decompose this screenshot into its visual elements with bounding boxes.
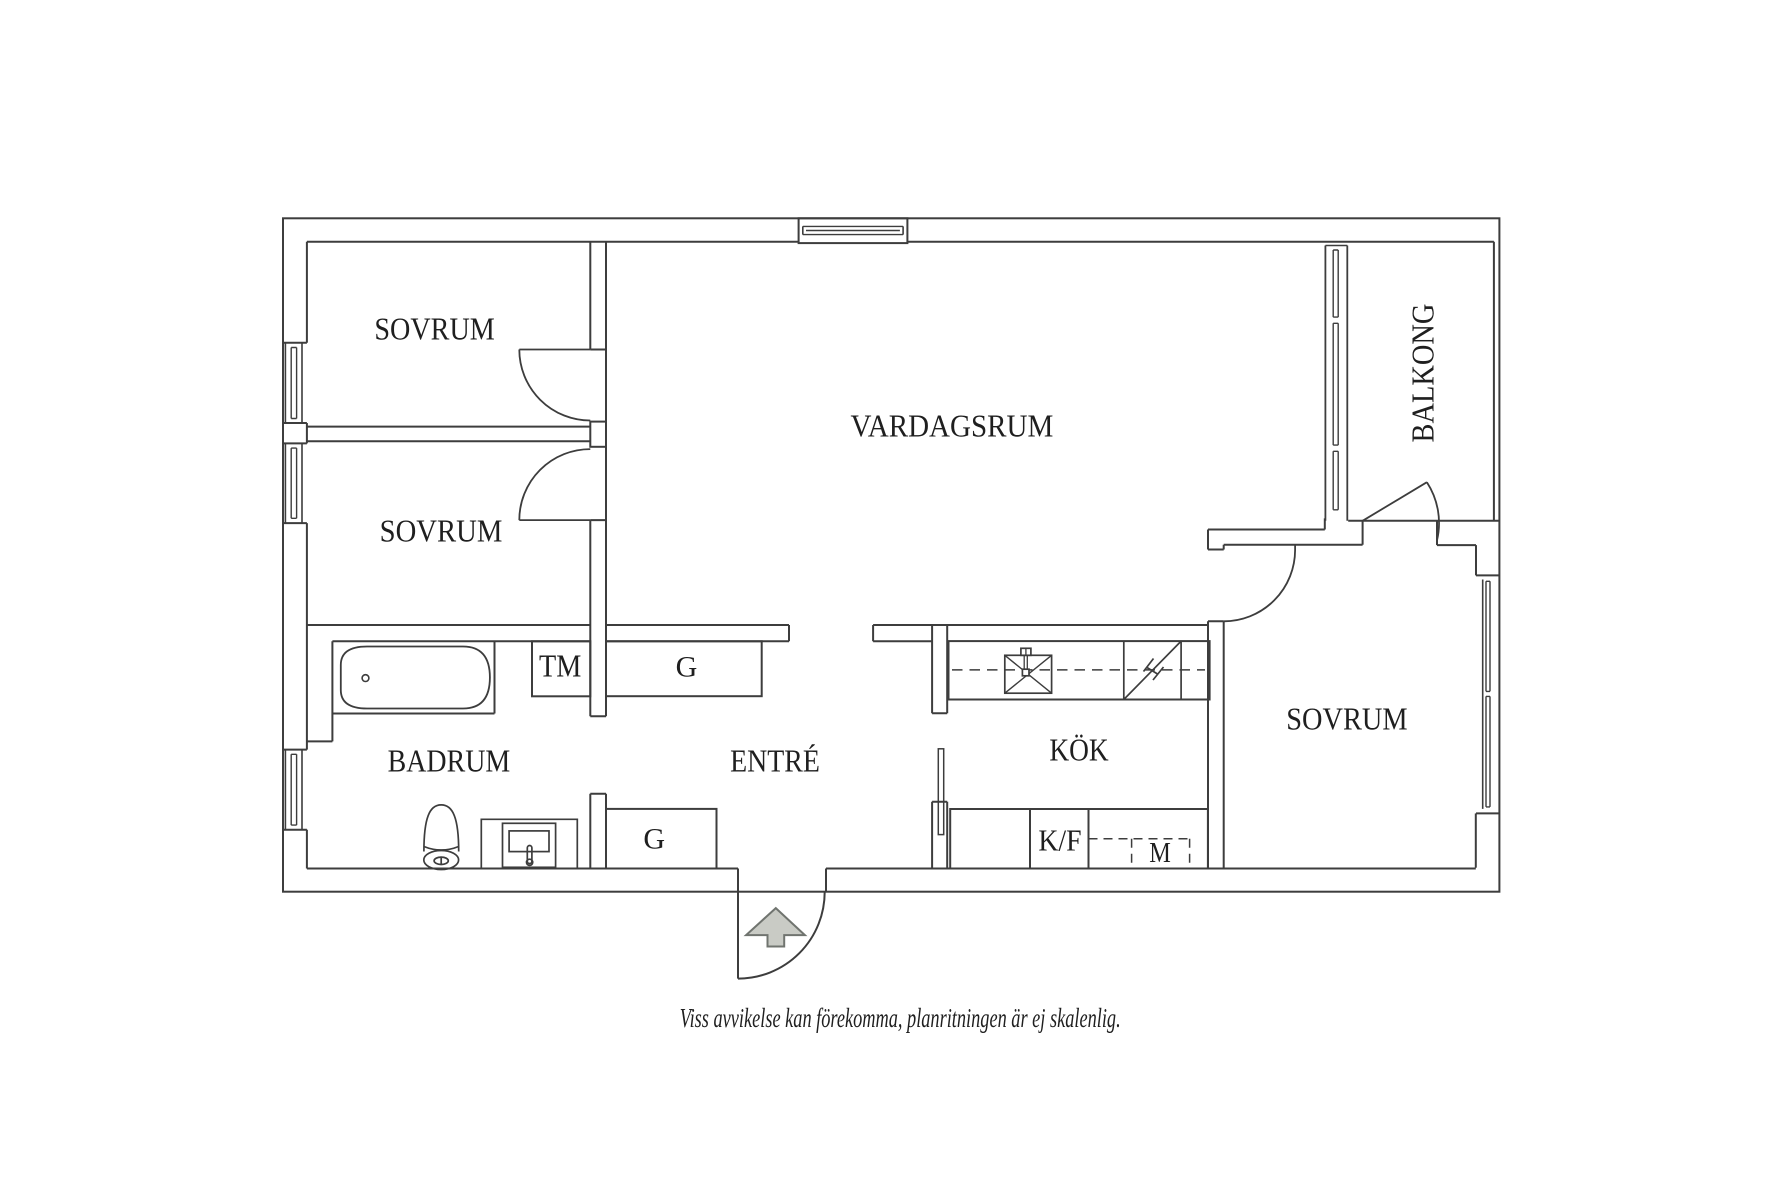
svg-text:BADRUM: BADRUM [388,743,511,779]
svg-text:SOVRUM: SOVRUM [374,311,494,347]
svg-text:SOVRUM: SOVRUM [1286,700,1407,736]
svg-text:Viss avvikelse kan förekomma,: Viss avvikelse kan förekomma, planritnin… [680,1002,1121,1033]
svg-text:BALKONG: BALKONG [1405,304,1441,443]
svg-text:VARDAGSRUM: VARDAGSRUM [851,408,1054,444]
svg-text:KÖK: KÖK [1049,731,1108,767]
svg-text:M: M [1149,838,1171,869]
svg-text:TM: TM [539,648,581,684]
svg-text:K/F: K/F [1038,823,1081,858]
svg-text:G: G [643,823,665,856]
svg-text:G: G [676,651,698,684]
svg-text:SOVRUM: SOVRUM [380,512,503,548]
svg-text:ENTRÉ: ENTRÉ [730,743,820,779]
